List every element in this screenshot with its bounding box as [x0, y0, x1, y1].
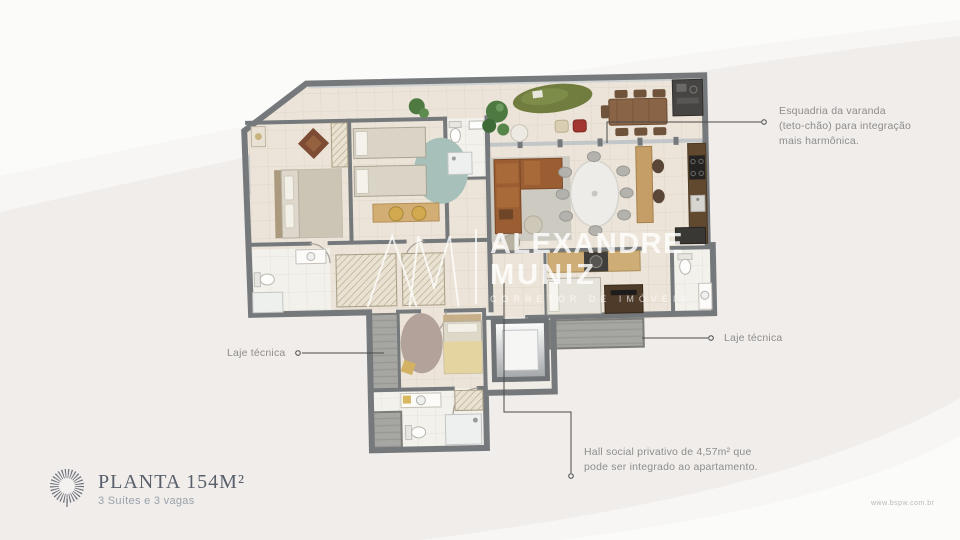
leader-laje-left-dot: [296, 351, 301, 356]
annotation-laje-right: Laje técnica: [724, 331, 782, 346]
wardrobe: [331, 123, 348, 167]
toilet: [680, 259, 691, 274]
laje-tecnica-bottom: [371, 412, 402, 451]
annotation-line: pode ser integrado ao apartamento.: [584, 460, 758, 475]
wardrobe-2: [402, 253, 445, 306]
tv-cabinet: [605, 285, 644, 314]
sink: [469, 121, 483, 129]
leader-laje-right-dot: [709, 336, 714, 341]
toilet: [450, 128, 460, 142]
page: Esquadria da varanda (teto-chão) para in…: [0, 0, 960, 540]
website-url: www.bspw.com.br: [871, 500, 935, 507]
annotation-line: Hall social privativo de 4,57m² que: [584, 445, 758, 460]
annotation-laje-left: Laje técnica: [227, 346, 285, 361]
fridge: [675, 227, 705, 244]
shower: [253, 292, 283, 313]
toilet: [260, 274, 274, 285]
pouf-red: [573, 120, 586, 132]
laje-tecnica-left: [369, 314, 400, 391]
pouf-beige: [555, 120, 568, 132]
pouf: [503, 234, 519, 250]
shelf: [455, 390, 483, 411]
stove: [689, 155, 705, 179]
plan-subtitle: 3 Suítes e 3 vagas: [98, 495, 245, 507]
shower: [448, 152, 472, 174]
desk: [373, 203, 439, 222]
laje-tecnica-right: [549, 319, 644, 349]
leader-hall-dot: [569, 474, 574, 479]
annotation-hall: Hall social privativo de 4,57m² que pode…: [584, 445, 758, 475]
floor-plan: [243, 75, 717, 455]
closet-block: [336, 253, 445, 307]
annotation-line: (teto-chão) para integração: [779, 119, 911, 134]
ottoman: [524, 216, 542, 234]
brand-logo-icon: [46, 466, 88, 512]
annotation-esquadria: Esquadria da varanda (teto-chão) para in…: [779, 104, 911, 149]
brand-block: PLANTA 154M² 3 Suítes e 3 vagas: [46, 466, 245, 512]
desk-chair-1: [389, 207, 403, 221]
sideboard: [636, 146, 654, 222]
annotation-line: Esquadria da varanda: [779, 104, 911, 119]
leader-esquadria-dot: [762, 120, 767, 125]
brand-text: PLANTA 154M² 3 Suítes e 3 vagas: [98, 471, 245, 507]
armchair: [511, 124, 528, 141]
toilet: [411, 427, 425, 438]
kitchen-sink: [691, 195, 705, 211]
wardrobe-1: [336, 254, 397, 307]
plan-title: PLANTA 154M²: [98, 471, 245, 493]
annotation-line: mais harmônica.: [779, 134, 911, 149]
elevator-shaft: [493, 321, 547, 380]
desk-chair-2: [412, 206, 426, 220]
floor-plan-canvas: [0, 0, 960, 540]
